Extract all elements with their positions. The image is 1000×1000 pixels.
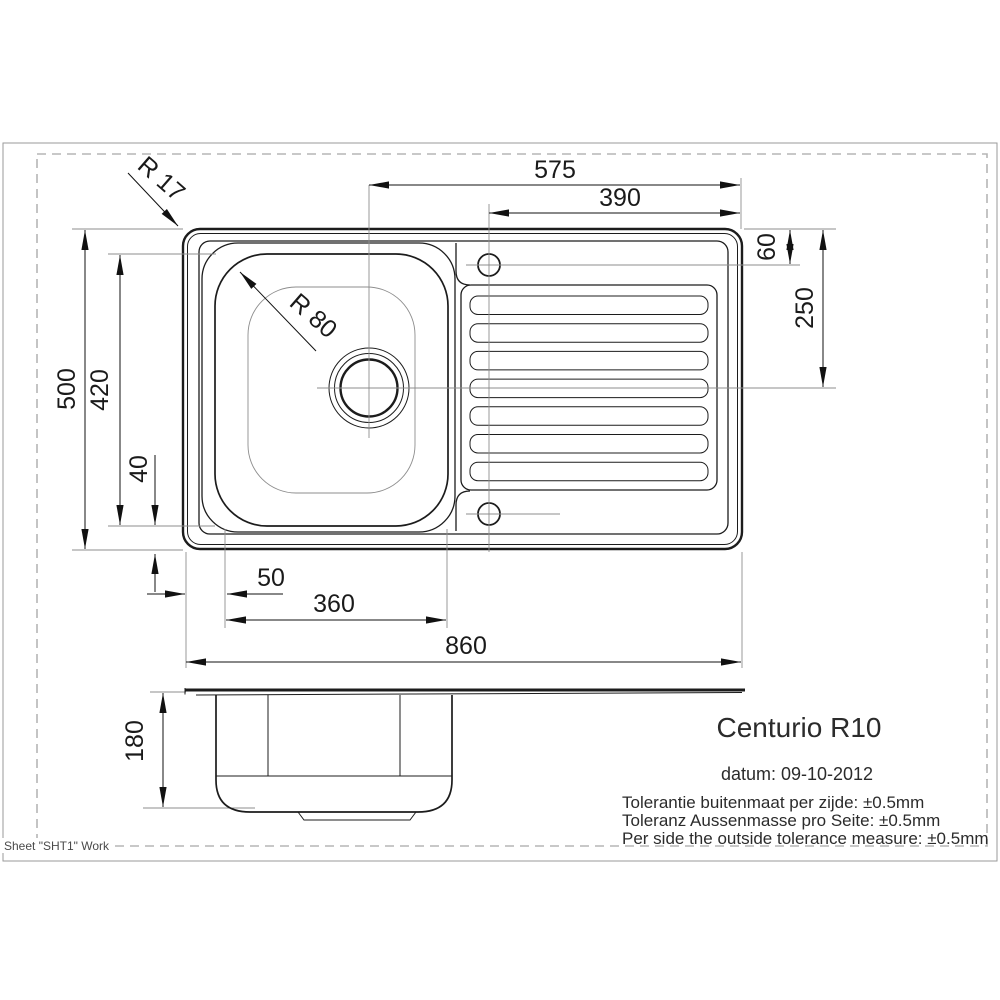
side-bowl-outline	[216, 695, 452, 812]
dim-label-60: 60	[753, 233, 781, 261]
drainboard-rib	[470, 435, 708, 454]
drainboard-rib	[470, 324, 708, 343]
sheet-frame	[3, 143, 997, 861]
bowl-inner-contour	[215, 254, 448, 526]
dim-label-860: 860	[445, 632, 487, 660]
sink-technical-drawing: 575 390 60 250 500 420 40 50 360 860 180…	[0, 0, 1000, 1000]
sink-outer-edge-inner-line	[188, 234, 738, 545]
dimension-labels: 575 390 60 250 500 420 40 50 360 860 180…	[53, 151, 819, 762]
side-rim-underside	[196, 693, 742, 696]
drainboard-rib	[470, 351, 708, 370]
dim-label-360: 360	[313, 590, 355, 618]
drainboard-rib	[470, 296, 708, 315]
tolerance-line-de: Toleranz Aussenmasse pro Seite: ±0.5mm	[622, 811, 940, 830]
dim-label-40: 40	[125, 455, 153, 483]
drainboard	[456, 243, 717, 531]
sink-top-view	[183, 229, 742, 549]
date-line: datum: 09-10-2012	[721, 764, 873, 784]
sheet-note: Sheet "SHT1" Work	[4, 839, 110, 853]
bowl-recess-contour	[202, 243, 455, 532]
dim-label-r80: R 80	[284, 288, 342, 344]
product-title: Centurio R10	[717, 712, 882, 743]
dim-label-575: 575	[534, 156, 576, 184]
title-block: Centurio R10 datum: 09-10-2012 Toleranti…	[622, 712, 989, 848]
dim-label-250: 250	[791, 287, 819, 329]
tolerance-line-nl: Tolerantie buitenmaat per zijde: ±0.5mm	[622, 793, 924, 812]
dim-label-420: 420	[86, 369, 114, 411]
side-drain-stub	[298, 812, 416, 820]
drainboard-bottom-notch	[456, 491, 470, 531]
dim-label-500: 500	[53, 368, 81, 410]
dim-label-r17: R 17	[132, 151, 190, 207]
dim-label-50: 50	[257, 564, 285, 592]
dim-label-180: 180	[121, 720, 149, 762]
drainboard-panel	[461, 285, 717, 490]
drainboard-top-notch	[456, 243, 470, 285]
tolerance-line-en: Per side the outside tolerance measure: …	[622, 829, 989, 848]
dim-label-390: 390	[599, 184, 641, 212]
sink-outer-edge	[183, 229, 742, 549]
drainboard-rib	[470, 462, 708, 481]
drainboard-rib	[470, 407, 708, 426]
